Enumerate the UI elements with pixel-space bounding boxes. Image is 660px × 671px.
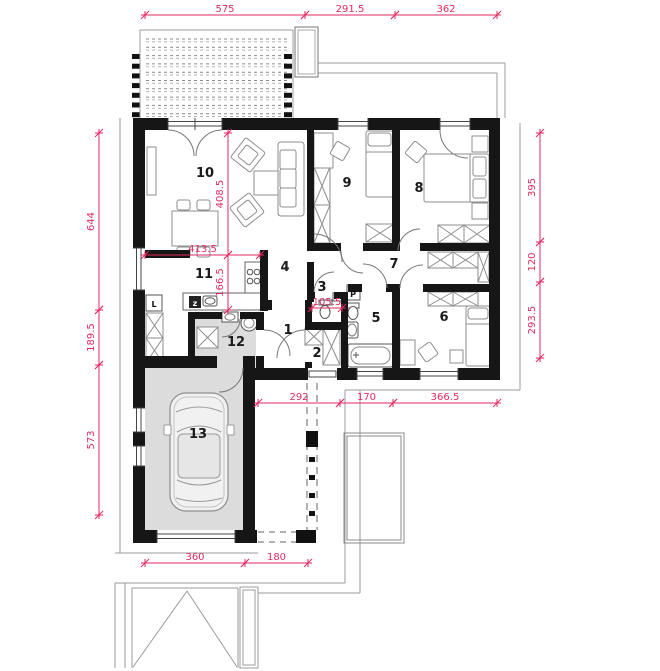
floor-plan: 12345678910111213LzP575291.5362644189.55… (0, 0, 660, 671)
pergola-post (306, 431, 318, 447)
rect (347, 436, 401, 540)
line (133, 591, 187, 667)
window-room6 (420, 368, 458, 380)
dimension-293.5: 293.5 (527, 306, 538, 335)
window-room9 (338, 118, 368, 130)
desk-chair (418, 342, 439, 363)
pillow (468, 308, 488, 319)
pergola-post (132, 103, 140, 108)
wall (243, 356, 255, 543)
dimension-120: 120 (527, 252, 538, 271)
wall (262, 300, 272, 310)
path (363, 264, 387, 288)
terrace-hatch (132, 39, 292, 117)
pergola-post (284, 93, 292, 98)
room-label-2: 2 (312, 346, 321, 361)
room-label-9: 9 (342, 176, 351, 191)
room-label-11: 11 (195, 267, 213, 282)
pergola-post (284, 112, 292, 117)
dimension-170: 170 (357, 392, 376, 403)
desk (314, 133, 333, 168)
rect (298, 30, 315, 74)
fixture-label-P: P (350, 290, 356, 299)
garage-door (157, 530, 235, 543)
window-living (133, 248, 145, 290)
rect (280, 188, 296, 207)
desk (400, 340, 415, 365)
path (341, 251, 363, 273)
dimension-291.5: 291.5 (336, 4, 365, 15)
pergola-post (284, 54, 292, 59)
room-label-4: 4 (280, 260, 289, 275)
car-mirror (227, 425, 234, 435)
fixture-label-L: L (151, 300, 156, 309)
room-label-10: 10 (196, 166, 214, 181)
room-label-13: 13 (189, 427, 207, 442)
pergola-post (284, 103, 292, 108)
dimension-575: 575 (215, 4, 234, 15)
toilet-bowl (348, 307, 358, 320)
pergola-post (309, 457, 315, 462)
car (164, 393, 234, 511)
pergola-post (284, 73, 292, 78)
pergola-post (132, 64, 140, 69)
dimension-362: 362 (436, 4, 455, 15)
wall (256, 356, 264, 368)
dimension-366.5: 366.5 (431, 392, 460, 403)
wall (240, 312, 256, 319)
rear-terrace (344, 433, 404, 543)
wall (133, 356, 217, 368)
dimension-189.5: 189.5 (86, 323, 97, 352)
pergola-post (132, 73, 140, 78)
path (400, 265, 423, 288)
pillow (368, 133, 391, 146)
fixture-label-z: z (193, 299, 198, 308)
car-mirror (164, 425, 171, 435)
path (196, 130, 222, 156)
room-label-5: 5 (371, 311, 380, 326)
pergola-post (284, 83, 292, 88)
nightstand (450, 350, 463, 363)
nightstand (472, 203, 488, 219)
dining-chair (177, 200, 190, 210)
wall (256, 312, 264, 330)
wall (188, 312, 195, 368)
dimension-360: 360 (185, 552, 204, 563)
floor-plan-svg: 12345678910111213LzP575291.5362644189.55… (0, 0, 660, 671)
coffee-table (254, 171, 278, 195)
window-bath (357, 368, 383, 380)
room-label-8: 8 (414, 181, 423, 196)
tv-board (147, 147, 156, 195)
line (187, 591, 237, 667)
wall (392, 118, 400, 251)
dimension-408.5: 408.5 (215, 180, 226, 209)
window-garage (133, 408, 145, 432)
stove (245, 262, 262, 293)
dimension-166.5: 166.5 (215, 268, 226, 297)
room-label-7: 7 (389, 257, 398, 272)
nightstand (472, 136, 488, 152)
wall (235, 530, 255, 543)
wall (133, 118, 145, 543)
window-garage (133, 446, 145, 466)
rect (243, 590, 255, 665)
room-label-3: 3 (317, 280, 326, 295)
pergola-post (132, 93, 140, 98)
dimension-395: 395 (527, 178, 538, 197)
rect (280, 150, 296, 169)
dimension-180: 180 (267, 552, 286, 563)
dimension-413.5: 413.5 (188, 244, 217, 255)
path (398, 229, 420, 251)
pillow (473, 179, 486, 198)
pergola-post (296, 530, 316, 543)
pergola-post (132, 83, 140, 88)
pillow (473, 157, 486, 176)
dining-chair (197, 200, 210, 210)
dining-table (172, 211, 218, 246)
wall (307, 118, 314, 250)
terrace-door-room8 (440, 118, 470, 130)
rect (280, 169, 296, 188)
wall (489, 118, 500, 380)
path (168, 130, 194, 156)
dimension-105.5: 105.5 (313, 297, 342, 308)
dimension-292: 292 (289, 392, 308, 403)
room-label-12: 12 (227, 335, 245, 350)
dimension-573: 573 (86, 430, 97, 449)
pergola-post (309, 475, 315, 480)
pergola-post (309, 511, 315, 516)
pergola-post (132, 112, 140, 117)
room-label-6: 6 (439, 310, 448, 325)
wall (133, 530, 159, 543)
wall (341, 292, 348, 368)
pergola-post (284, 64, 292, 69)
pergola-post (309, 493, 315, 498)
wall (392, 284, 400, 368)
pergola-post (132, 54, 140, 59)
wall (420, 243, 489, 251)
wall (363, 243, 398, 251)
entrance-door-panel (309, 371, 336, 377)
dimension-644: 644 (86, 212, 97, 231)
room-label-1: 1 (283, 323, 292, 338)
wall (423, 284, 489, 292)
